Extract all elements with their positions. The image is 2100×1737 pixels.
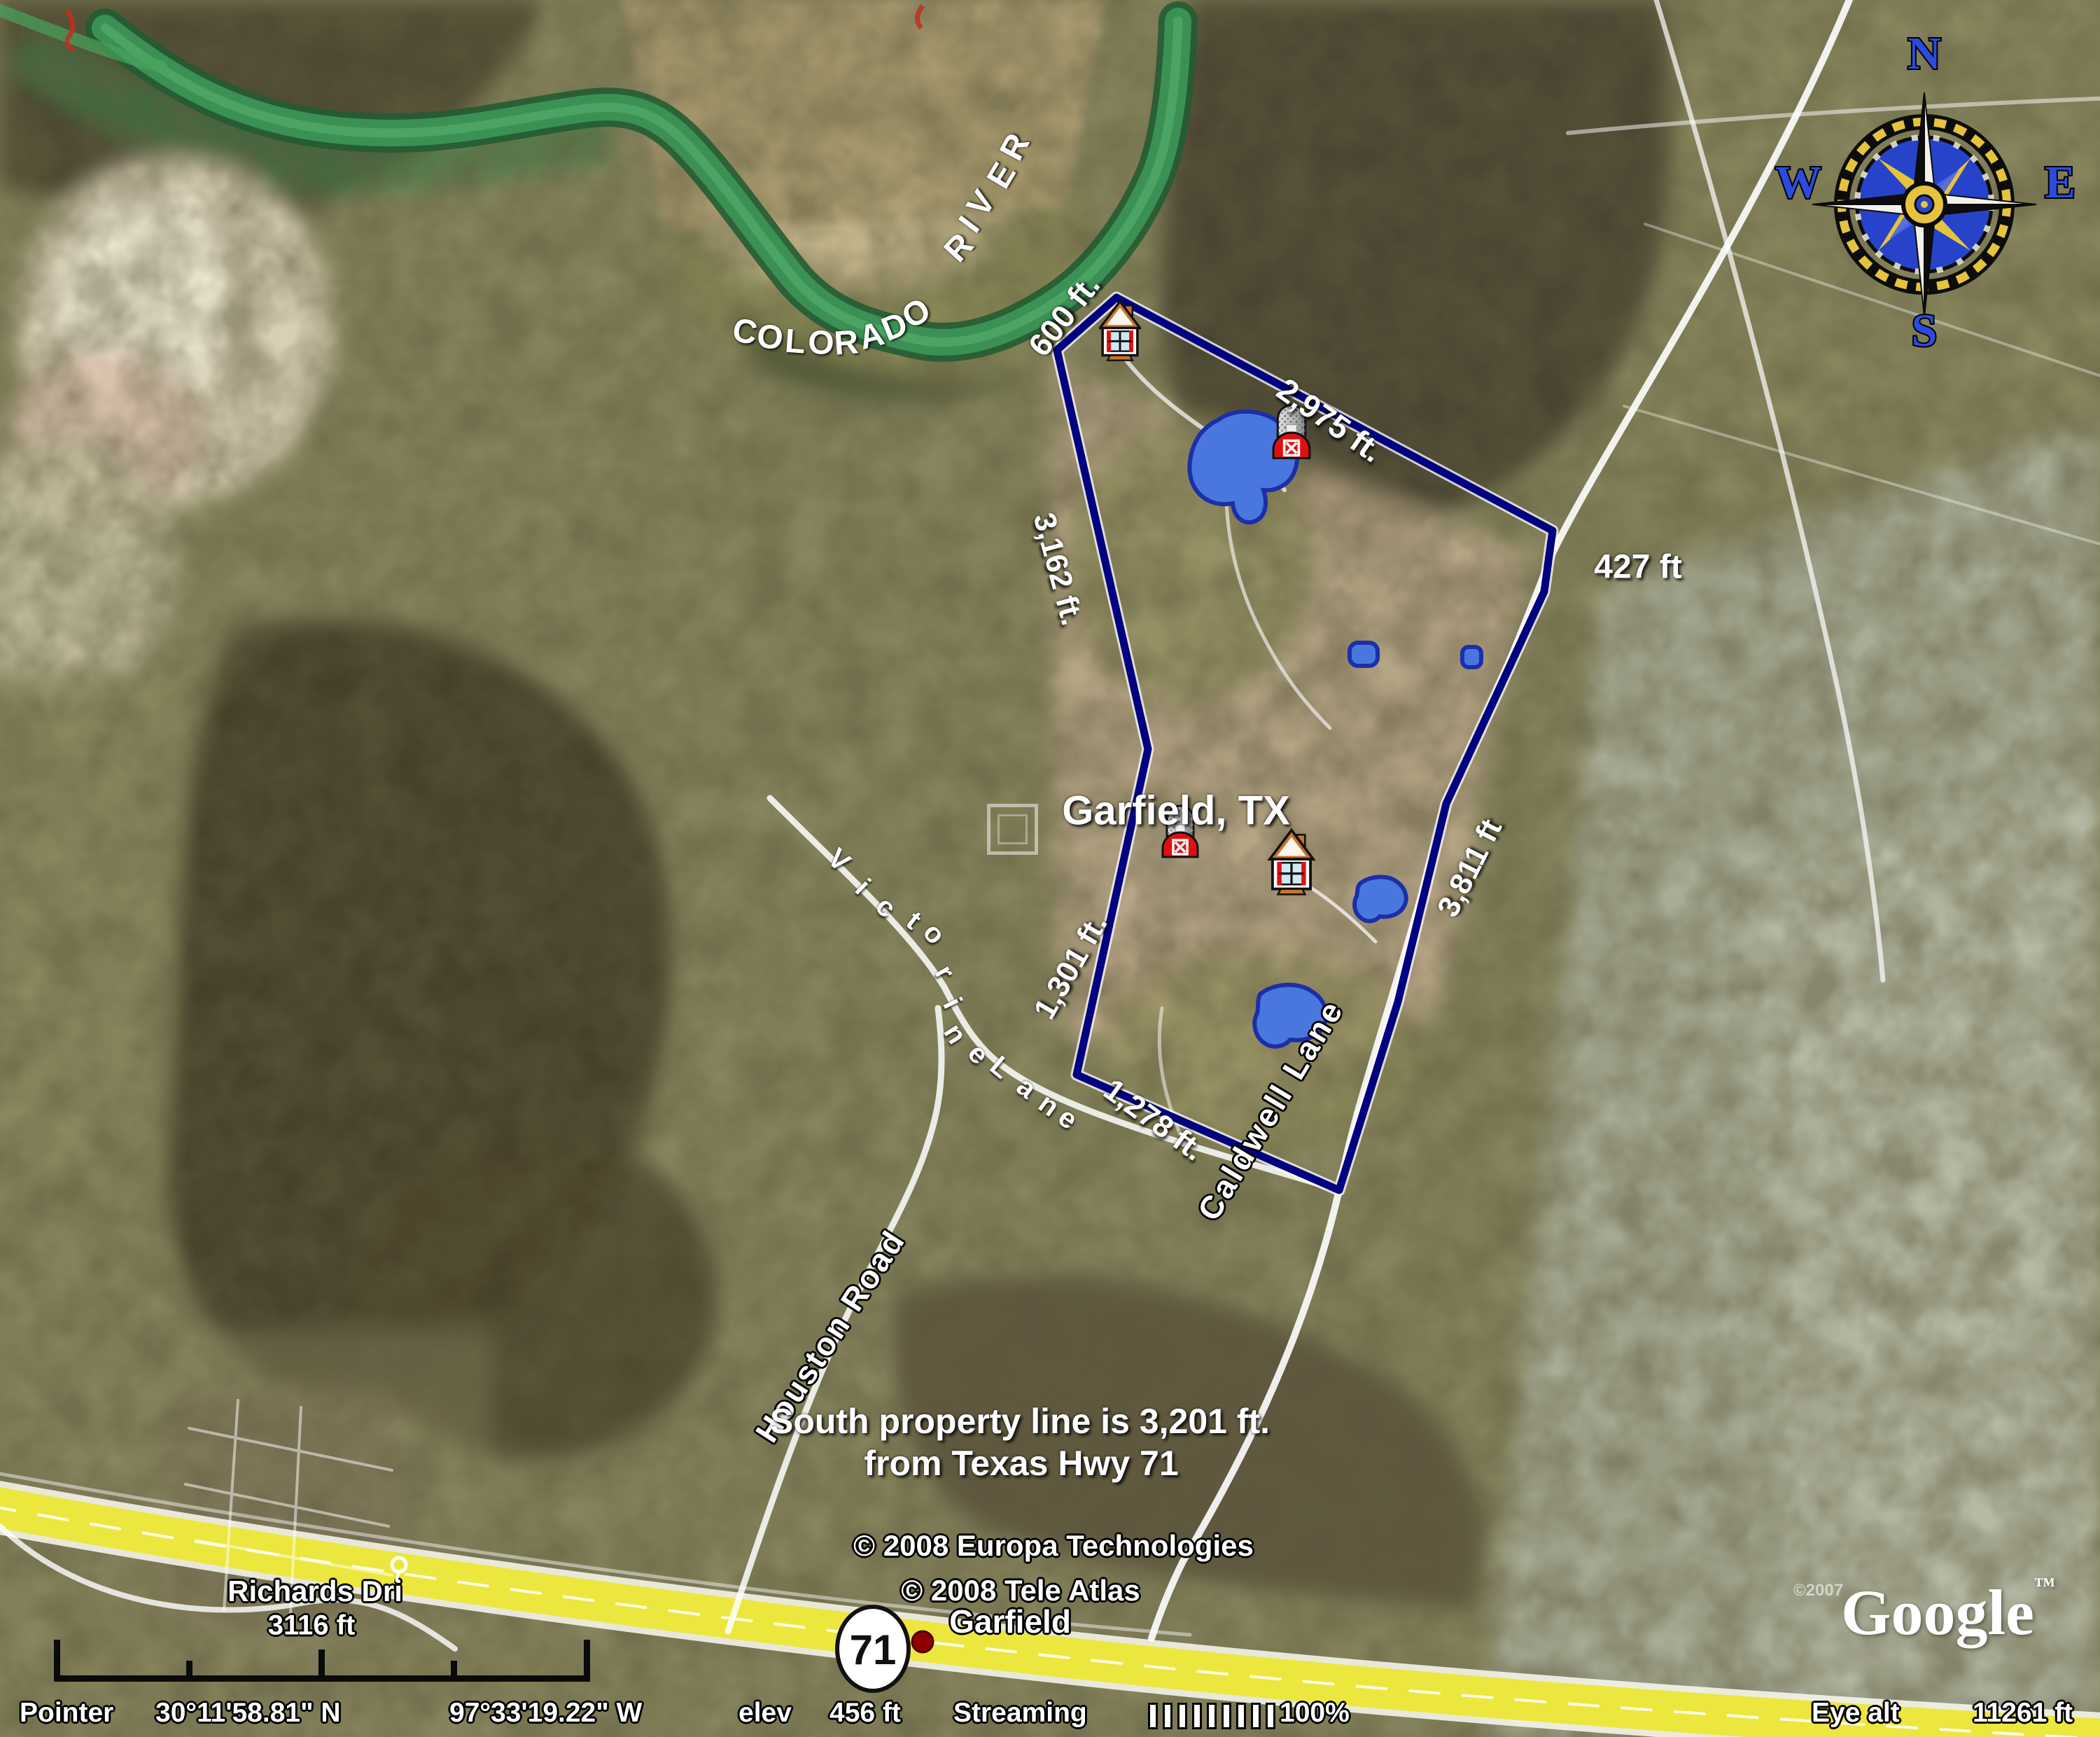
compass-south-label: S — [1912, 305, 1938, 356]
image-overlay-marker[interactable] — [987, 804, 1038, 855]
streaming-bar — [1163, 1703, 1172, 1729]
note-line2: from Texas Hwy 71 — [864, 1443, 1178, 1484]
streaming-bar — [1148, 1703, 1158, 1729]
town-dot-icon[interactable] — [909, 1628, 937, 1656]
compass-north-label: N — [1907, 28, 1941, 79]
compass-rose: N W E S — [1764, 7, 2086, 364]
svg-text:71: 71 — [850, 1626, 897, 1673]
map-viewport[interactable]: N W E S COLORADORIVER VictorineLane 600 … — [0, 0, 2100, 1737]
compass-east-label: E — [2045, 157, 2075, 208]
pointer-longitude: 97°33'19.22" W — [449, 1698, 642, 1729]
richards-drive-marker-icon[interactable] — [387, 1555, 411, 1583]
map-letter: O — [755, 316, 785, 358]
note-line1: South property line is 3,201 ft. — [770, 1401, 1270, 1442]
scale-label: 3116 ft — [268, 1610, 356, 1642]
streaming-bar — [1236, 1703, 1246, 1729]
compass-west-label: W — [1775, 157, 1821, 208]
map-letter: L — [783, 322, 806, 362]
richards-drive-label: Richards Dri — [227, 1575, 402, 1608]
streaming-bar — [1192, 1703, 1202, 1729]
city-label: Garfield, TX — [1062, 788, 1290, 835]
measurement-427ft: 427 ft — [1594, 548, 1681, 587]
eye-alt-label: Eye alt — [1812, 1698, 1900, 1729]
map-letter: O — [808, 323, 834, 363]
streaming-bar — [1251, 1703, 1261, 1729]
streaming-progress-bars — [1148, 1699, 1280, 1730]
eye-alt-value: 11261 ft — [1973, 1698, 2073, 1729]
streaming-bar — [1266, 1703, 1275, 1729]
status-bar: Pointer 30°11'58.81" N 97°33'19.22" W el… — [0, 1698, 2100, 1737]
house-placemark[interactable] — [1099, 299, 1141, 362]
streaming-bar — [1221, 1703, 1231, 1729]
streaming-percent: 100% — [1280, 1698, 1350, 1729]
elevation-label: elev — [738, 1698, 792, 1729]
map-letter: R — [833, 323, 860, 363]
copyright-europa: © 2008 Europa Technologies — [853, 1529, 1254, 1563]
elevation-value: 456 ft — [829, 1698, 901, 1729]
imagery-year-label: ©2007 — [1793, 1581, 1843, 1600]
pointer-latitude: 30°11'58.81" N — [155, 1698, 341, 1729]
streaming-bar — [1177, 1703, 1187, 1729]
town-label: Garfield — [949, 1603, 1071, 1640]
streaming-label: Streaming — [953, 1698, 1087, 1729]
streaming-bar — [1207, 1703, 1217, 1729]
pointer-label: Pointer — [20, 1698, 113, 1729]
house-placemark[interactable] — [1266, 828, 1317, 896]
google-logo: Google™ — [1841, 1574, 2055, 1649]
scale-bar: 3116 ft — [54, 1635, 590, 1682]
highway-71-shield[interactable]: 71 — [834, 1604, 911, 1694]
